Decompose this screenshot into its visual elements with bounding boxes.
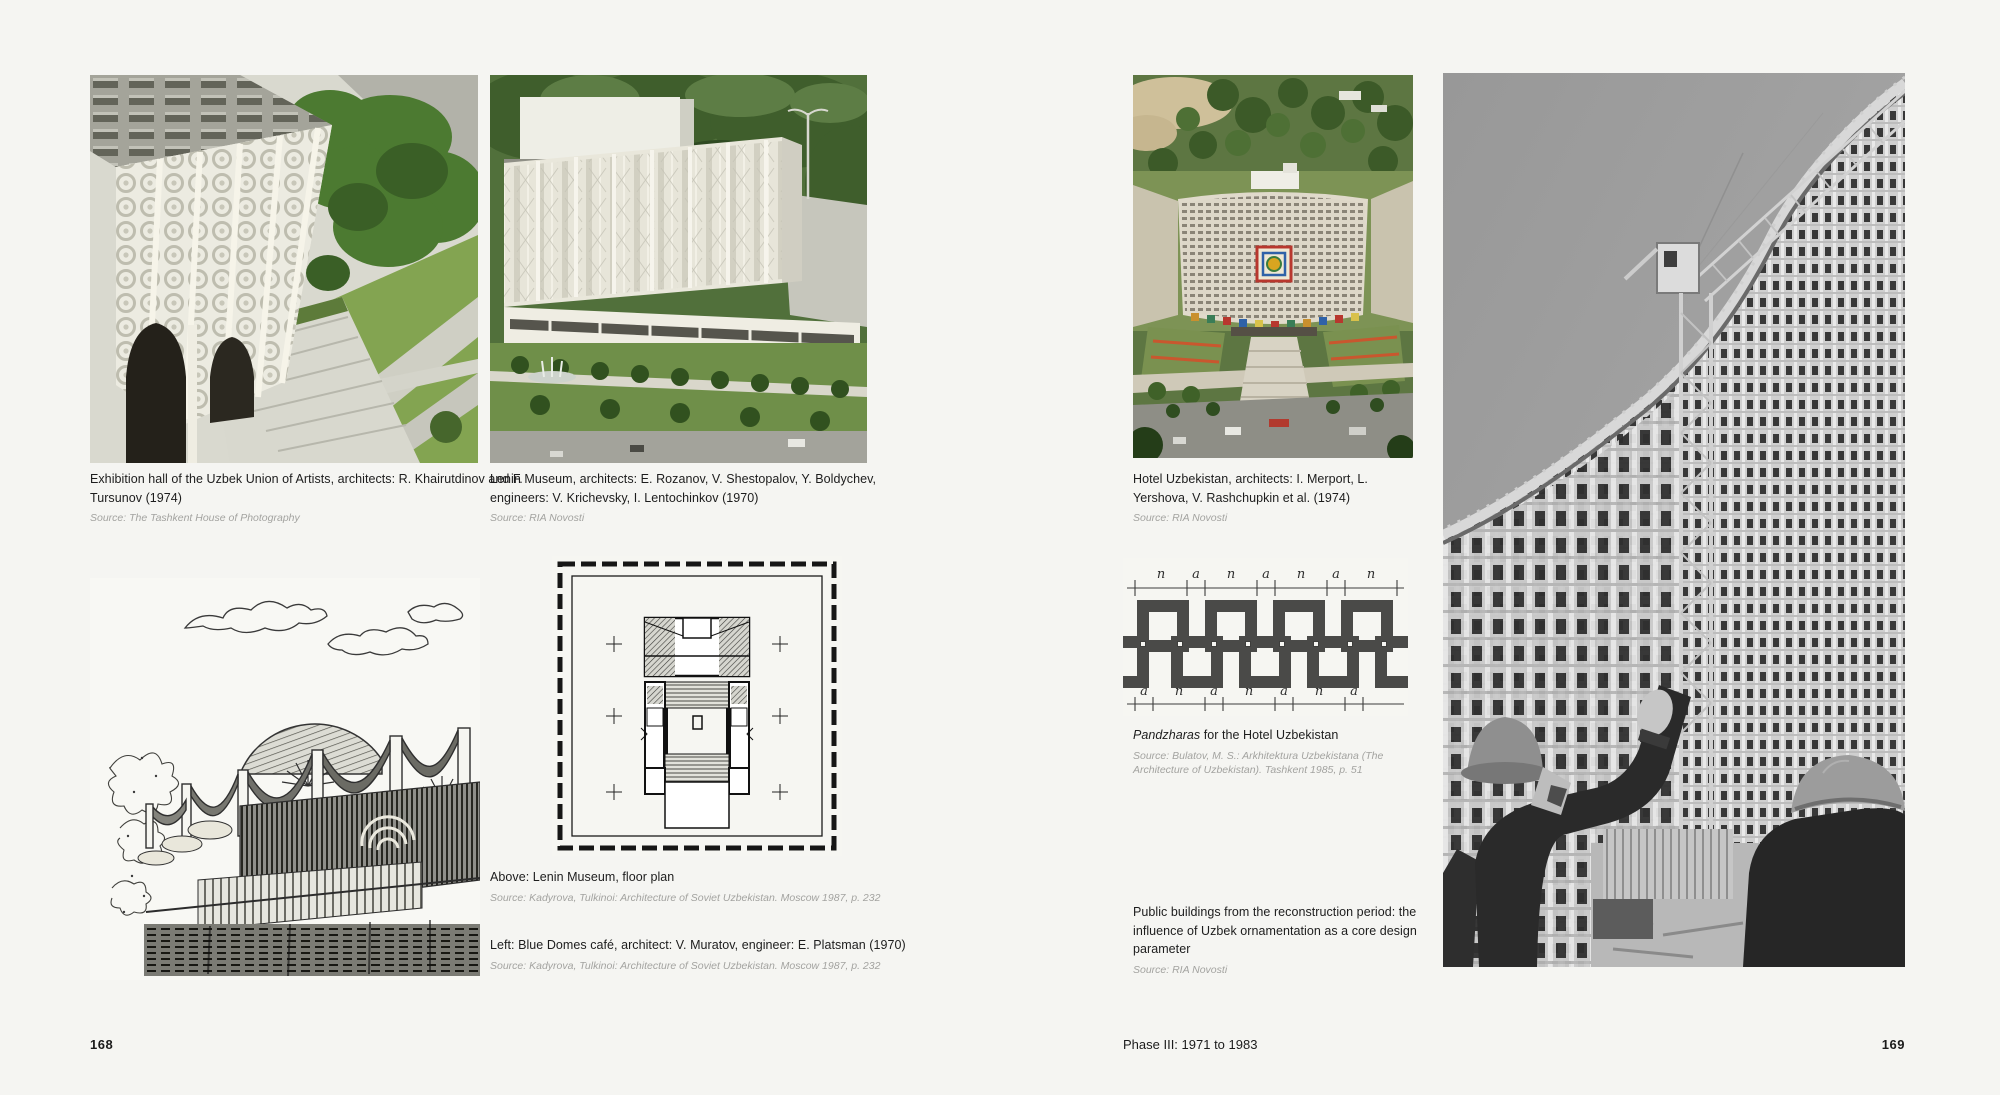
dim-label: n <box>1315 684 1323 699</box>
dim-label: a <box>1210 684 1218 699</box>
floor-plan-caption: Above: Lenin Museum, floor plan <box>490 868 1010 887</box>
dim-label: a <box>1192 567 1200 582</box>
dim-label: n <box>1157 567 1165 582</box>
pandzharas-source: Source: Bulatov, M. S.: Arkhitektura Uzb… <box>1133 749 1393 778</box>
dim-label: n <box>1245 684 1253 699</box>
floor-plan-caption-block: Above: Lenin Museum, floor plan Source: … <box>490 868 1010 905</box>
dim-label: a <box>1140 684 1148 699</box>
left-page-number: 168 <box>90 1037 113 1052</box>
blue-domes-caption-block: Left: Blue Domes café, architect: V. Mur… <box>490 936 1010 973</box>
blue-domes-caption: Left: Blue Domes café, architect: V. Mur… <box>490 936 1010 955</box>
book-spread: Exhibition hall of the Uzbek Union of Ar… <box>0 0 2000 1095</box>
right-page-number: 169 <box>1700 1037 1905 1052</box>
pandzharas-term: Pandzharas <box>1133 728 1200 742</box>
dim-label: a <box>1350 684 1358 699</box>
pandzharas-caption-block: Pandzharas for the Hotel Uzbekistan Sour… <box>1133 726 1393 778</box>
hotel-uzbekistan-photo <box>1133 75 1413 458</box>
lenin-caption-block: Lenin Museum, architects: E. Rozanov, V.… <box>490 470 918 526</box>
exhibition-source: Source: The Tashkent House of Photograph… <box>90 511 530 526</box>
statement-text: Public buildings from the reconstruction… <box>1133 903 1445 959</box>
blue-domes-source: Source: Kadyrova, Tulkinoi: Architecture… <box>490 959 1010 974</box>
lenin-museum-photo <box>490 75 867 463</box>
right-page-footer: Phase III: 1971 to 1983 <box>1123 1037 1257 1052</box>
hotel-source: Source: RIA Novosti <box>1133 511 1395 526</box>
statement-source: Source: RIA Novosti <box>1133 963 1445 978</box>
dim-label: n <box>1227 567 1235 582</box>
pandzharas-diagram: n a n a n a n <box>1123 558 1408 716</box>
dim-label: a <box>1332 567 1340 582</box>
exhibition-caption-block: Exhibition hall of the Uzbek Union of Ar… <box>90 470 530 526</box>
hotel-caption-block: Hotel Uzbekistan, architects: I. Merport… <box>1133 470 1395 526</box>
dim-label: n <box>1175 684 1183 699</box>
dim-label: a <box>1280 684 1288 699</box>
pandzharas-caption: Pandzharas for the Hotel Uzbekistan <box>1133 726 1393 745</box>
dim-label: a <box>1262 567 1270 582</box>
pandzharas-caption-rest: for the Hotel Uzbekistan <box>1200 728 1338 742</box>
dim-label: n <box>1297 567 1305 582</box>
exhibition-caption: Exhibition hall of the Uzbek Union of Ar… <box>90 470 530 507</box>
hotel-caption: Hotel Uzbekistan, architects: I. Merport… <box>1133 470 1395 507</box>
blue-domes-drawing <box>90 578 480 980</box>
exhibition-hall-photo <box>90 75 478 463</box>
lenin-caption: Lenin Museum, architects: E. Rozanov, V.… <box>490 470 918 507</box>
lenin-floor-plan-drawing <box>552 556 842 856</box>
dim-label: n <box>1367 567 1375 582</box>
construction-photo <box>1443 73 1905 967</box>
statement-block: Public buildings from the reconstruction… <box>1133 903 1445 977</box>
lenin-source: Source: RIA Novosti <box>490 511 918 526</box>
floor-plan-source: Source: Kadyrova, Tulkinoi: Architecture… <box>490 891 1010 906</box>
